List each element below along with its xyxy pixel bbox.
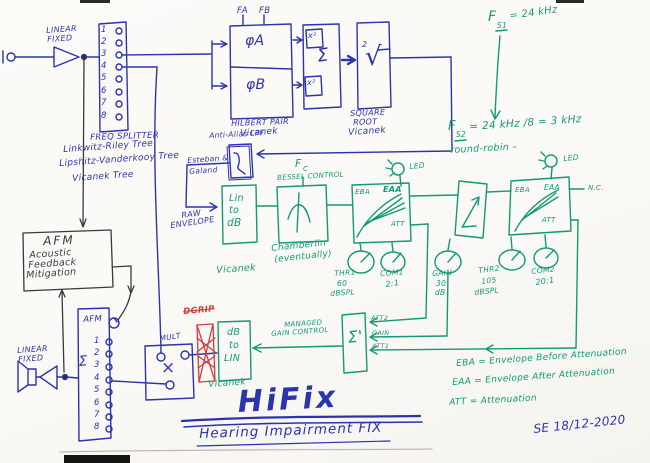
fs1-sub: S1: [497, 22, 507, 30]
lin-to-db-author: Vicanek: [216, 263, 256, 275]
knob-gain-unit: dB: [435, 289, 446, 297]
db-to-lin-line3: LIN: [224, 354, 240, 364]
knob-gain-name: GAIN: [432, 269, 452, 278]
splitter2-number-5: 5: [94, 386, 100, 395]
sum-block-glyph: Σ': [347, 328, 364, 345]
afm-title: AFM: [43, 234, 75, 247]
splitter2-number-7: 7: [94, 411, 100, 420]
lin-to-db-line3: dB: [227, 218, 241, 229]
hilbert-pair-box: [230, 15, 302, 119]
knob-com1-name: COM1: [380, 268, 404, 277]
squarer-x2-bottom: x²: [307, 79, 316, 87]
green-ink: [218, 30, 584, 381]
comp1-eba-label: EBA: [355, 189, 370, 196]
splitter2-afm-label: AFM: [83, 315, 102, 324]
led1-icon: [386, 160, 404, 186]
splitter2-sum-glyph: Σ: [78, 354, 88, 369]
led2-icon: [539, 152, 557, 179]
anti-alias-author-2: Galand: [189, 166, 218, 175]
comp2-eaa-label: EAA: [544, 184, 560, 192]
page-title: HiFix: [237, 383, 339, 418]
splitter2-number-2: 2: [94, 349, 100, 358]
splitter2-number-6: 6: [94, 399, 100, 408]
mult-glyph: ×: [161, 360, 176, 377]
splitter1-number-6: 6: [101, 87, 107, 96]
bessel-filter-box: [277, 177, 328, 243]
hilbert-phi-b: φB: [246, 78, 265, 92]
fs2-f: F: [448, 120, 456, 133]
knob-gain-value: 30: [436, 280, 446, 288]
knob-thr2-value: 105: [481, 276, 497, 285]
hilbert-phi-a: φA: [245, 34, 264, 48]
knob-thr1-name: THR1: [334, 269, 356, 278]
knob-thr2[interactable]: [499, 237, 525, 270]
fs2-sub: S2: [456, 131, 466, 139]
squarer-sum-glyph: Σ: [316, 46, 330, 65]
splitter1-number-8: 8: [101, 112, 107, 121]
splitter1-number-4: 4: [101, 62, 107, 71]
splitter2-number-3: 3: [94, 361, 100, 370]
comp2-att-label: ATT: [542, 217, 556, 224]
hilbert-fb-label: FB: [259, 7, 270, 16]
db-to-lin-line1: dB: [227, 328, 240, 338]
lin-to-db-line2: to: [229, 206, 239, 216]
splitter2-number-1: 1: [94, 337, 100, 346]
comp1-att-label: ATT: [391, 221, 405, 228]
sum-input-mid-label: GAIN: [372, 330, 389, 337]
splitter2-number-8: 8: [94, 423, 100, 432]
splitter1-number-5: 5: [101, 74, 107, 83]
sum-input-top-label: ATT2: [371, 315, 388, 322]
bessel-fc-main: F: [295, 158, 302, 169]
envelope-route: [257, 57, 452, 158]
knob-com2[interactable]: [534, 235, 558, 268]
hilbert-fa-label: FA: [237, 7, 248, 16]
speaker-icon: [18, 361, 68, 392]
green-chain-wires: [256, 189, 584, 206]
freq-splitter2-box: [66, 308, 119, 441]
comp1-eaa-label: EAA: [383, 186, 402, 194]
scanned-sketch-page: LINEAR FIXED 1 2 3 4 5 6 7 8 FREQ SPLITT…: [0, 0, 650, 463]
comp2-eba-label: EBA: [515, 187, 530, 194]
anti-alias-lpf-box: [227, 144, 253, 180]
comp2-led-label: LED: [563, 154, 579, 163]
knob-thr1-unit: dBSPL: [330, 288, 355, 297]
splitter2-number-4: 4: [94, 374, 100, 383]
knob-thr1-value: 60: [337, 280, 347, 288]
sqrt-glyph: √: [365, 44, 382, 70]
splitter1-number-2: 2: [101, 38, 107, 47]
db-to-lin-line2: to: [229, 341, 239, 351]
splitter1-number-3: 3: [101, 50, 107, 59]
gain-block: [455, 181, 487, 238]
knob-thr2-name: THR2: [478, 265, 500, 275]
lin-to-db-line1: Lin: [229, 194, 244, 204]
comp1-led-label: LED: [409, 162, 425, 171]
squarer-x2-top: x²: [308, 32, 317, 40]
splitter1-number-7: 7: [101, 99, 107, 108]
splitter1-number-1: 1: [101, 26, 107, 35]
fs1-f: F: [488, 10, 496, 24]
comp2-nc-label: N.C.: [588, 185, 604, 192]
sum-input-bottom-label: ATT1: [372, 343, 389, 350]
